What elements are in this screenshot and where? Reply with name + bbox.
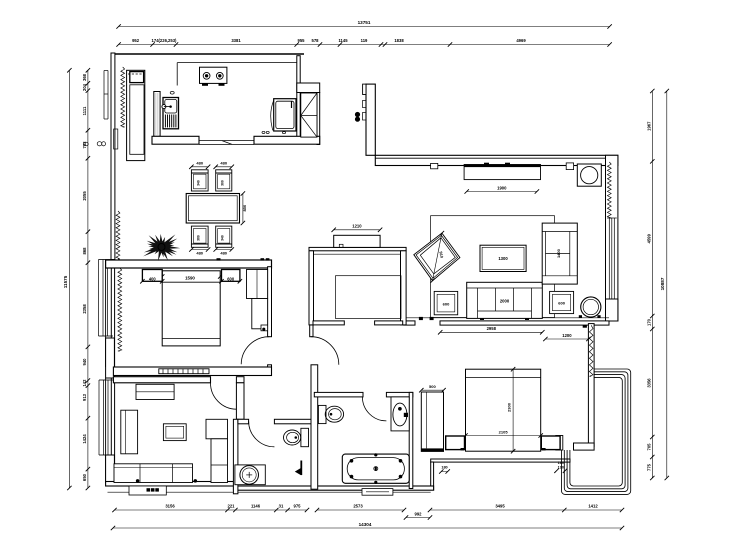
svg-text:14304: 14304 [359, 522, 372, 527]
svg-text:1838: 1838 [394, 38, 404, 43]
svg-text:1967: 1967 [646, 121, 651, 131]
svg-text:1300: 1300 [498, 256, 508, 261]
svg-text:400: 400 [149, 277, 157, 282]
svg-text:3495: 3495 [495, 504, 505, 509]
svg-text:1400: 1400 [556, 248, 561, 258]
svg-text:13751: 13751 [358, 20, 371, 25]
svg-text:600: 600 [558, 301, 565, 306]
svg-text:650: 650 [82, 473, 87, 481]
svg-text:4599: 4599 [646, 233, 651, 243]
svg-text:3381: 3381 [231, 38, 241, 43]
svg-text:170: 170 [646, 318, 651, 326]
svg-text:2000: 2000 [500, 299, 510, 304]
svg-text:300: 300 [221, 180, 225, 186]
svg-text:992: 992 [415, 511, 423, 516]
svg-text:174(226,253): 174(226,253) [152, 38, 178, 43]
svg-text:705: 705 [646, 443, 651, 451]
svg-text:2055: 2055 [82, 191, 87, 201]
svg-text:500: 500 [429, 384, 436, 389]
svg-text:368: 368 [82, 73, 87, 81]
svg-text:221: 221 [228, 504, 236, 509]
svg-text:3356: 3356 [646, 378, 651, 388]
svg-text:952: 952 [132, 38, 140, 43]
svg-text:2105: 2105 [499, 429, 509, 434]
svg-text:1200: 1200 [562, 333, 572, 338]
svg-text:850: 850 [242, 204, 247, 211]
svg-text:480: 480 [220, 250, 227, 255]
svg-text:600: 600 [227, 277, 235, 282]
svg-text:119: 119 [361, 38, 368, 43]
svg-text:775: 775 [646, 463, 651, 471]
svg-text:142: 142 [82, 379, 87, 387]
svg-text:2958: 2958 [487, 326, 497, 331]
svg-text:1412: 1412 [588, 504, 598, 509]
svg-text:1145: 1145 [338, 38, 348, 43]
svg-text:1111: 1111 [82, 106, 87, 115]
svg-text:2358: 2358 [82, 304, 87, 314]
svg-text:180: 180 [441, 465, 447, 469]
svg-text:913: 913 [82, 393, 87, 401]
svg-text:975: 975 [294, 504, 302, 509]
svg-text:480: 480 [196, 250, 203, 255]
svg-text:31: 31 [279, 504, 284, 509]
svg-text:955: 955 [298, 38, 306, 43]
svg-text:1210: 1210 [352, 224, 362, 229]
svg-text:1424: 1424 [82, 434, 87, 444]
svg-text:480: 480 [196, 161, 203, 166]
svg-text:1590: 1590 [185, 276, 195, 281]
svg-text:204: 204 [82, 83, 87, 91]
svg-text:340: 340 [221, 235, 225, 241]
svg-text:868: 868 [82, 247, 87, 255]
svg-text:1146: 1146 [251, 504, 261, 509]
svg-text:11575: 11575 [63, 275, 68, 288]
svg-text:480: 480 [220, 161, 227, 166]
svg-text:2300: 2300 [507, 402, 512, 412]
svg-text:940: 940 [82, 358, 87, 366]
svg-text:600: 600 [443, 302, 450, 307]
svg-text:360: 360 [197, 235, 201, 241]
svg-text:4969: 4969 [516, 38, 526, 43]
svg-text:340: 340 [197, 180, 201, 186]
svg-text:578: 578 [312, 38, 320, 43]
svg-text:2573: 2573 [353, 504, 363, 509]
svg-text:10887: 10887 [660, 277, 665, 290]
svg-text:1900: 1900 [497, 185, 507, 190]
svg-text:3156: 3156 [165, 504, 175, 509]
svg-text:180: 180 [558, 461, 564, 465]
